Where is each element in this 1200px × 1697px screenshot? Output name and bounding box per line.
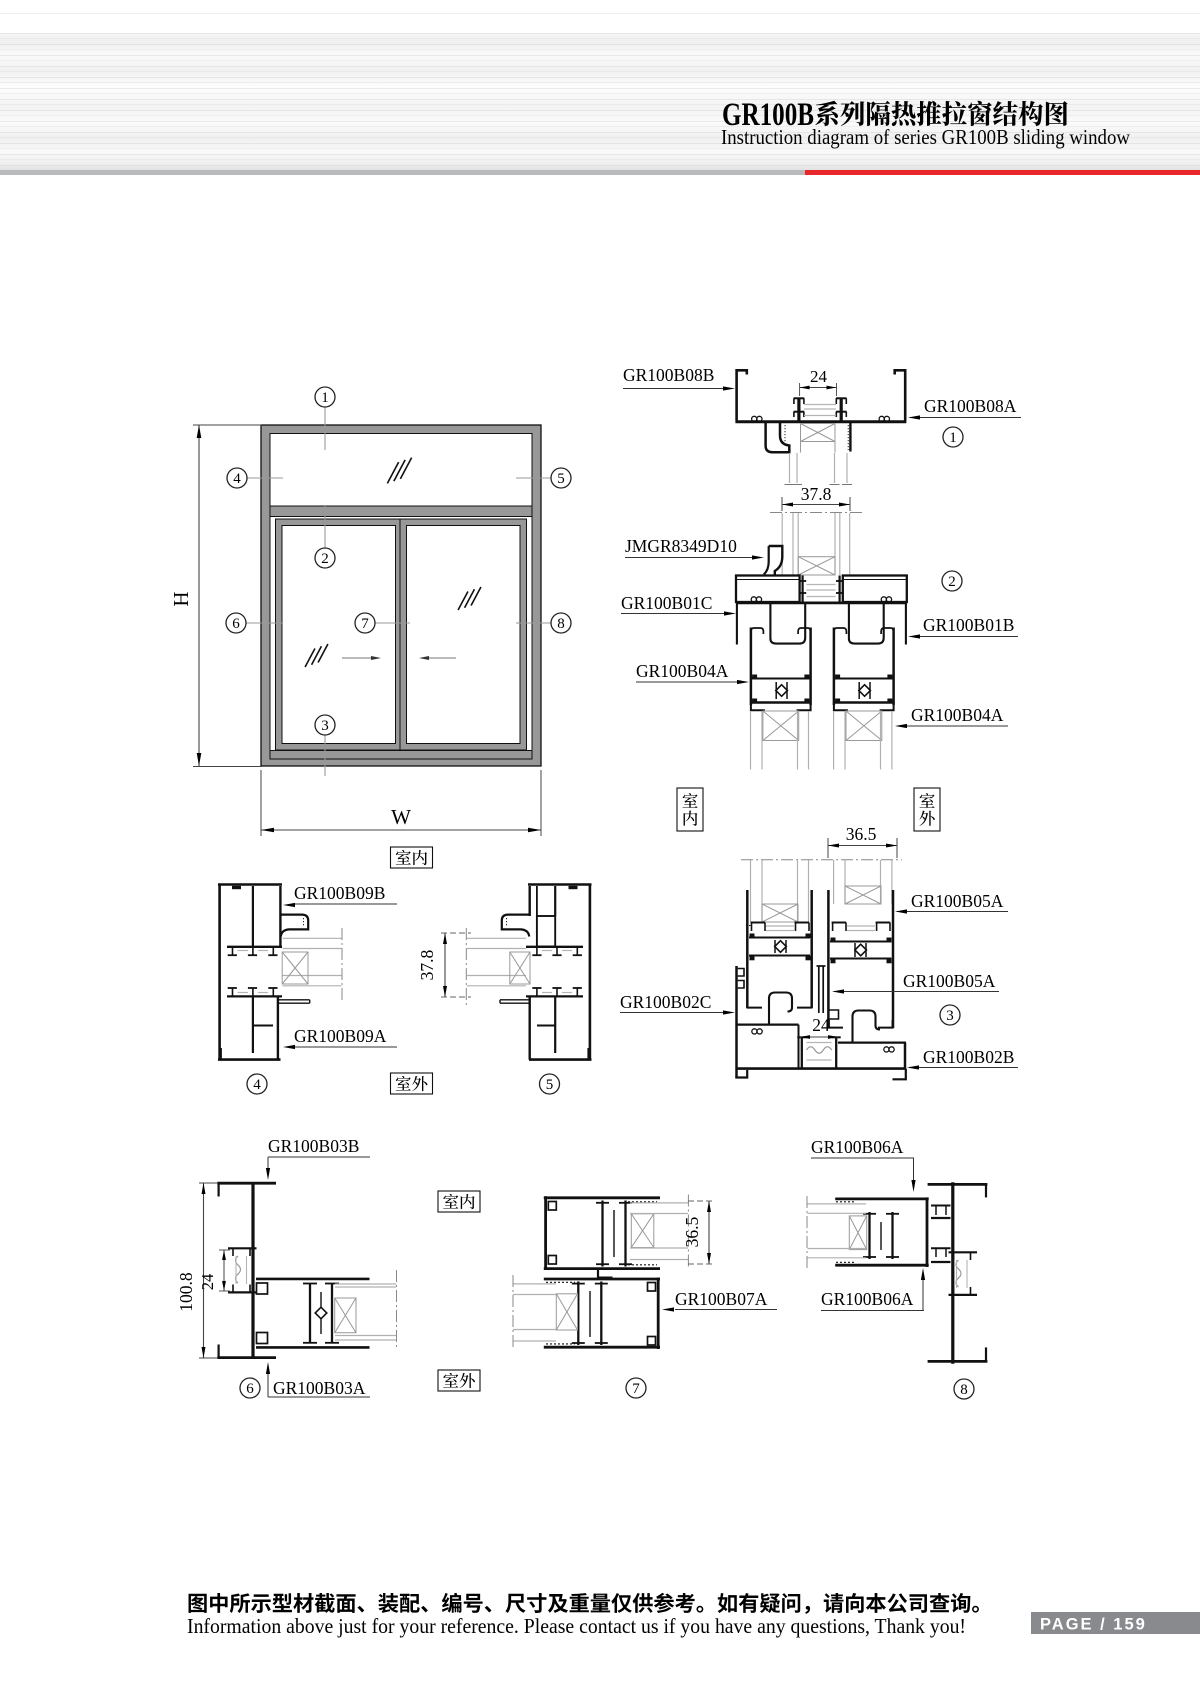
svg-text:GR100B06A: GR100B06A	[811, 1137, 904, 1157]
svg-text:36.5: 36.5	[682, 1216, 702, 1247]
svg-text:GR100B09B: GR100B09B	[294, 883, 385, 903]
svg-text:GR100B06A: GR100B06A	[821, 1289, 914, 1309]
svg-text:37.8: 37.8	[801, 484, 832, 504]
svg-text:GR100B08B: GR100B08B	[623, 365, 714, 385]
svg-text:3: 3	[321, 718, 329, 734]
svg-text:2: 2	[321, 551, 329, 567]
svg-text:GR100B05A: GR100B05A	[903, 971, 996, 991]
svg-text:6: 6	[246, 1381, 254, 1397]
svg-text:JMGR8349D10: JMGR8349D10	[625, 536, 737, 556]
svg-text:24: 24	[810, 367, 828, 386]
svg-text:37.8: 37.8	[417, 949, 437, 980]
svg-text:GR100B08A: GR100B08A	[924, 396, 1017, 416]
svg-text:H: H	[169, 591, 193, 606]
svg-text:GR100B04A: GR100B04A	[911, 705, 1004, 725]
svg-text:PAGE / 159: PAGE / 159	[1040, 1616, 1147, 1634]
svg-text:GR100B04A: GR100B04A	[636, 661, 729, 681]
svg-text:1: 1	[949, 430, 957, 446]
svg-text:GR100B02B: GR100B02B	[923, 1047, 1014, 1067]
svg-text:5: 5	[557, 471, 565, 487]
svg-text:GR100B03A: GR100B03A	[273, 1378, 366, 1398]
svg-text:8: 8	[557, 616, 565, 632]
svg-text:GR100B07A: GR100B07A	[675, 1289, 768, 1309]
svg-text:GR100B09A: GR100B09A	[294, 1026, 387, 1046]
svg-text:GR100B05A: GR100B05A	[911, 891, 1004, 911]
svg-text:24: 24	[812, 1015, 830, 1035]
svg-text:GR100B03B: GR100B03B	[268, 1136, 359, 1156]
svg-text:7: 7	[361, 616, 369, 632]
svg-text:100.8: 100.8	[176, 1272, 196, 1312]
svg-text:4: 4	[233, 471, 241, 487]
svg-text:2: 2	[948, 574, 956, 590]
svg-text:36.5: 36.5	[846, 824, 877, 844]
svg-text:GR100B01C: GR100B01C	[621, 593, 712, 613]
svg-text:6: 6	[232, 616, 240, 632]
svg-text:GR100B02C: GR100B02C	[620, 992, 711, 1012]
svg-text:8: 8	[960, 1382, 968, 1398]
svg-text:GR100B01B: GR100B01B	[923, 615, 1014, 635]
svg-text:3: 3	[946, 1008, 954, 1024]
svg-text:5: 5	[546, 1077, 554, 1093]
svg-text:W: W	[391, 805, 411, 829]
svg-text:24: 24	[198, 1274, 217, 1291]
svg-text:7: 7	[632, 1381, 640, 1397]
svg-text:1: 1	[321, 390, 329, 406]
svg-text:Information above just for you: Information above just for your referenc…	[187, 1614, 966, 1638]
svg-text:Instruction diagram of series: Instruction diagram of series GR100B sli…	[721, 125, 1130, 149]
svg-text:4: 4	[253, 1077, 261, 1093]
